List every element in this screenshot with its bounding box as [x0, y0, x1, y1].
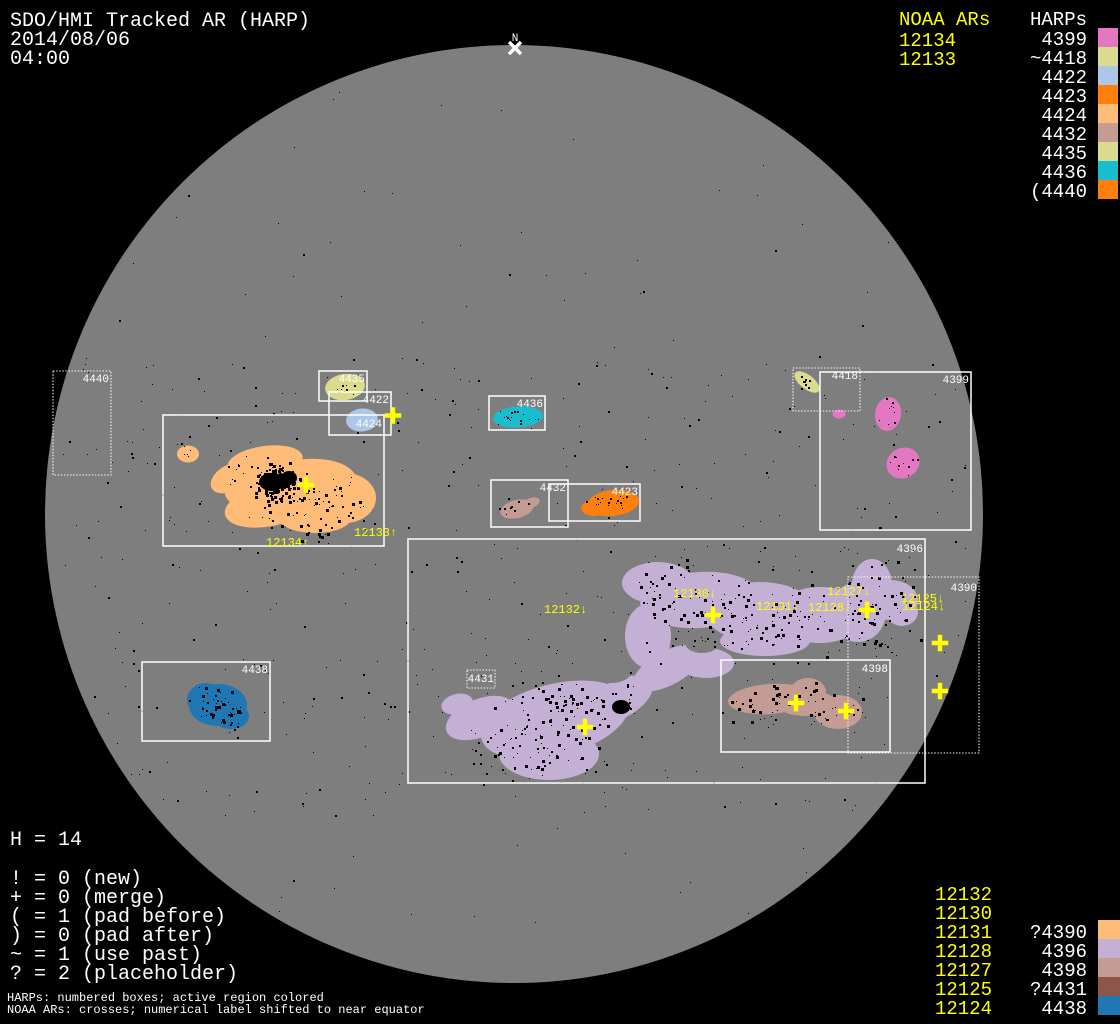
- svg-text:04:00: 04:00: [10, 48, 70, 71]
- svg-text:4423: 4423: [612, 487, 638, 499]
- svg-text:12127↓: 12127↓: [827, 585, 870, 599]
- svg-text:4436: 4436: [517, 399, 543, 411]
- svg-text:HARPs: HARPs: [1030, 9, 1087, 31]
- svg-text:4424: 4424: [356, 419, 383, 431]
- svg-text:12124: 12124: [935, 998, 992, 1020]
- svg-text:4422: 4422: [363, 395, 389, 407]
- svg-text:12131↓: 12131↓: [756, 600, 799, 614]
- svg-text:12134↑: 12134↑: [266, 536, 309, 550]
- svg-text:4438: 4438: [1041, 998, 1087, 1020]
- svg-text:4431: 4431: [468, 674, 495, 686]
- svg-text:H = 14: H = 14: [10, 829, 82, 852]
- svg-text:12133↑: 12133↑: [354, 526, 397, 540]
- svg-text:12130↓: 12130↓: [673, 587, 716, 601]
- svg-text:(4440: (4440: [1030, 181, 1087, 203]
- svg-text:12132↓: 12132↓: [544, 603, 587, 617]
- svg-text:NOAA ARs: crosses; numerical l: NOAA ARs: crosses; numerical label shift…: [7, 1003, 425, 1017]
- svg-text:NOAA ARs: NOAA ARs: [899, 9, 990, 31]
- svg-text:4440: 4440: [83, 374, 109, 386]
- svg-text:12128↓: 12128↓: [808, 601, 851, 615]
- svg-text:4398: 4398: [862, 664, 888, 676]
- svg-text:4390: 4390: [951, 583, 977, 595]
- svg-text:4396: 4396: [897, 544, 923, 556]
- svg-text:12124↓: 12124↓: [902, 600, 945, 614]
- svg-text:4438: 4438: [242, 665, 268, 677]
- svg-text:12133: 12133: [899, 49, 956, 71]
- svg-text:N: N: [512, 33, 519, 45]
- svg-text:4432: 4432: [540, 483, 566, 495]
- svg-text:4435: 4435: [339, 374, 365, 386]
- svg-text:4399: 4399: [943, 375, 969, 387]
- svg-text:4418: 4418: [832, 371, 858, 383]
- svg-text:? = 2 (placeholder): ? = 2 (placeholder): [10, 963, 238, 986]
